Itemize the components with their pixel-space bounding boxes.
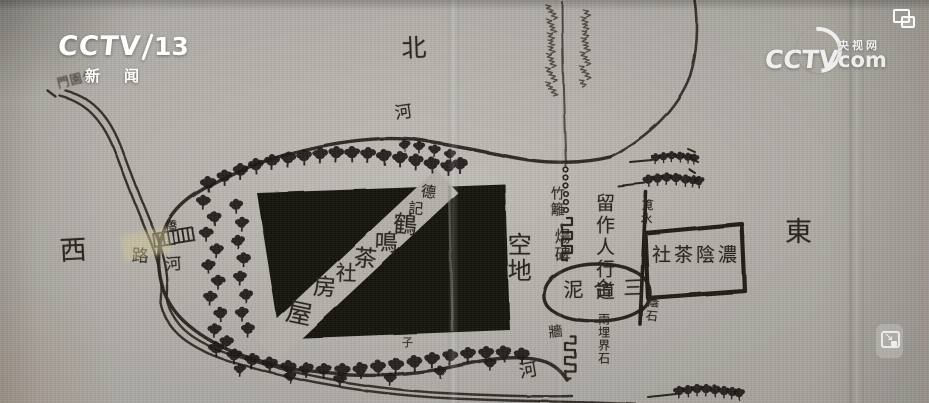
empty-lot-label: 空地 <box>504 232 529 284</box>
river-top-right <box>610 0 697 157</box>
river-label-top: 河 <box>394 104 413 124</box>
corner-tint <box>0 273 110 403</box>
illegible-annotations <box>546 5 592 96</box>
eave-stone-label: 蔭石 <box>644 295 659 324</box>
cctv-brand-text: CCTV <box>56 31 142 62</box>
mortar-patch-label: 泥合三 <box>563 277 654 301</box>
logo-slash-divider <box>141 33 153 60</box>
paper-crease <box>448 0 459 403</box>
pip-front-rect <box>901 16 915 28</box>
teahouse-band-char: 社 <box>335 262 357 285</box>
river-label-left: 河 <box>165 256 182 274</box>
resize-icon[interactable]: ↘ <box>876 324 903 358</box>
owner-mark-char: 德 <box>420 184 437 202</box>
paper-crease <box>556 0 563 403</box>
teahouse-band-end: 屋 <box>283 299 314 331</box>
cctv-com-watermark: CCTV 央视网 com <box>760 28 920 88</box>
tree-note: 子 <box>402 337 413 349</box>
teahouse-band-char: 房 <box>312 275 337 301</box>
pip-windows-icon[interactable] <box>893 9 917 29</box>
channel-name-char: 新 <box>85 65 100 86</box>
river-label-bottom: 河 <box>518 361 539 383</box>
channel-name: 新 闻 <box>85 65 189 86</box>
compass-north: 北 <box>401 35 427 62</box>
water-conduit-label: 筧水 <box>639 198 654 227</box>
compass-east: 東 <box>785 219 812 247</box>
watermark-site-com: com <box>838 50 887 71</box>
compass-west: 西 <box>59 237 87 267</box>
channel-number: 13 <box>154 32 189 61</box>
teahouse-band-char: 鳴 <box>374 231 398 256</box>
paper-scratch <box>921 0 923 403</box>
resize-dot <box>891 341 897 346</box>
broadcast-frame: 北 西 東 河 河 河 路 橋 門園公 德 記 鶴 鳴 茶 社 房 屋 空地 竹… <box>0 0 929 403</box>
cctv13-channel-logo: CCTV 13 新 闻 <box>58 31 189 86</box>
boundary-stone-note: 兩埋界石 <box>597 313 610 365</box>
teahouse-east-label: 社茶陰濃 <box>652 246 740 266</box>
channel-name-char: 闻 <box>124 65 139 86</box>
